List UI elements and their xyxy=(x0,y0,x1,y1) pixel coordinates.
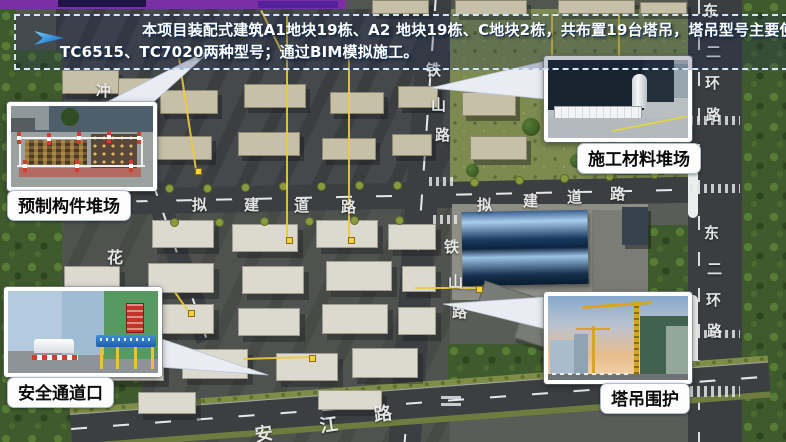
callout-label-safety: 安全通道口 xyxy=(7,377,114,408)
map-building-construction xyxy=(398,307,436,335)
silo-icon xyxy=(632,74,647,108)
crosswalk xyxy=(690,184,740,193)
callout-image-crane xyxy=(544,292,692,384)
barrier-post xyxy=(47,133,51,145)
materials-scene xyxy=(548,60,688,138)
barrier-post xyxy=(23,160,27,172)
road-label-char: 路 xyxy=(341,200,356,215)
map-building-construction xyxy=(388,224,436,250)
tree-icon xyxy=(61,108,79,126)
barrier-post xyxy=(137,132,141,144)
tree-icon xyxy=(522,118,540,136)
road-label-char: 山 xyxy=(431,98,446,113)
crane-jib-icon xyxy=(582,301,652,309)
slide-canvas: 铁山路铁山路东二环路东二环路拟建道路拟建道路花冲安江路 xyxy=(0,0,786,442)
canopy-leg xyxy=(116,347,119,369)
crane-marker xyxy=(195,168,202,175)
barrier-post xyxy=(77,132,81,144)
distant-building xyxy=(550,340,576,374)
crane-marker xyxy=(476,286,483,293)
road-label-char: 路 xyxy=(452,305,467,320)
top-bar-segment xyxy=(258,1,338,8)
map-building-construction xyxy=(326,261,392,291)
crosswalk xyxy=(441,396,461,410)
road-label-char: 路 xyxy=(706,108,721,123)
road-label-char: 二 xyxy=(707,262,722,277)
callout-label-crane: 塔吊围护 xyxy=(600,383,690,414)
road-label-char: 建 xyxy=(523,194,538,209)
precast-road xyxy=(11,118,35,132)
road-label-char: 路 xyxy=(610,187,625,202)
map-building-construction xyxy=(322,304,388,334)
bush-icon xyxy=(350,216,359,225)
road-label-char: 江 xyxy=(319,416,339,436)
map-building xyxy=(372,0,429,14)
map-building xyxy=(244,84,306,108)
crane-marker xyxy=(188,310,195,317)
road-label-char: 建 xyxy=(244,198,259,213)
banner-arrow-icon xyxy=(34,29,64,47)
bush-icon xyxy=(393,181,402,190)
road-label-char: 拟 xyxy=(192,198,207,213)
map-building xyxy=(330,92,384,114)
barrier-post xyxy=(17,132,21,144)
road-label-char: 山 xyxy=(448,275,463,290)
map-building xyxy=(455,0,527,15)
crane-marker xyxy=(348,237,355,244)
bush-icon xyxy=(241,183,250,192)
road-label-char: 路 xyxy=(435,128,450,143)
map-building-construction xyxy=(138,392,196,414)
green-glass-tower-front xyxy=(666,326,688,378)
map-building-dark xyxy=(622,207,648,245)
map-building-construction xyxy=(242,266,304,294)
bush-icon xyxy=(560,174,569,183)
crane-marker xyxy=(309,355,316,362)
map-building-construction xyxy=(316,220,378,248)
top-purple-bar xyxy=(0,0,346,9)
banner-line-1: 本项目装配式建筑A1地块19栋、A2 地块19栋、C地块2栋，共布置19台塔吊，… xyxy=(142,19,786,42)
bush-icon xyxy=(305,217,314,226)
map-building xyxy=(558,0,635,14)
callout-image-precast xyxy=(7,102,157,191)
striped-barrier xyxy=(32,355,78,360)
distant-building xyxy=(574,334,588,374)
crane-leader-line xyxy=(415,287,478,289)
map-building-construction xyxy=(352,348,418,378)
blue-hall xyxy=(461,210,588,286)
bush-icon xyxy=(203,184,212,193)
road-label-char: 铁 xyxy=(444,240,459,255)
map-building xyxy=(470,136,527,160)
map-building-construction xyxy=(182,349,248,379)
bush-icon xyxy=(470,178,479,187)
tree-icon xyxy=(466,164,479,177)
crane-mast-icon xyxy=(634,302,639,376)
safety-canopy xyxy=(96,335,156,347)
crane-mast-icon xyxy=(592,326,595,374)
canopy-leg xyxy=(151,347,154,369)
road-label-char: 花 xyxy=(107,250,123,266)
map-building xyxy=(462,92,516,116)
crosswalk xyxy=(690,386,740,397)
crane-scene xyxy=(548,296,688,380)
bush-icon xyxy=(215,218,224,227)
barrier-post xyxy=(129,160,133,172)
map-building xyxy=(640,2,687,14)
road-label-char: 路 xyxy=(707,324,722,339)
road-label-char: 路 xyxy=(373,405,393,425)
road-label-char: 环 xyxy=(705,76,720,91)
map-building xyxy=(118,78,154,100)
road-label-char: 拟 xyxy=(477,198,492,213)
canopy-leg xyxy=(134,347,137,369)
road-label-char: 东 xyxy=(704,226,719,241)
barrier-post xyxy=(107,131,111,143)
road-label-char: 冲 xyxy=(96,84,111,99)
road-label-char: 安 xyxy=(254,425,274,442)
hoist-icon xyxy=(126,303,144,333)
canopy-leg xyxy=(100,347,103,369)
tent-icon xyxy=(34,339,74,353)
road-label-char: 道 xyxy=(567,190,582,205)
crosswalk xyxy=(429,177,457,186)
bush-icon xyxy=(165,184,174,193)
map-building-construction xyxy=(152,220,214,248)
barrier-post xyxy=(75,160,79,172)
banner-line-2: TC6515、TC7020两种型号；通过BIM模拟施工。 xyxy=(60,41,786,64)
bush-icon xyxy=(355,181,364,190)
info-banner: 本项目装配式建筑A1地块19栋、A2 地块19栋、C地块2栋，共布置19台塔吊，… xyxy=(14,14,786,70)
bush-icon xyxy=(515,176,524,185)
precast-walkway xyxy=(19,168,141,177)
road-label-char: 环 xyxy=(706,293,721,308)
road-label-char: 道 xyxy=(294,199,309,214)
map-building-construction xyxy=(238,308,300,336)
bush-icon xyxy=(395,216,404,225)
fence-line xyxy=(141,137,143,167)
map-building xyxy=(238,132,300,156)
map-building xyxy=(154,136,212,160)
bush-icon xyxy=(170,218,179,227)
callout-label-materials: 施工材料堆场 xyxy=(577,143,701,174)
safety-scene xyxy=(8,291,158,373)
top-bar-segment xyxy=(58,0,146,7)
map-building xyxy=(392,134,432,156)
crane-marker xyxy=(286,237,293,244)
callout-label-precast: 预制构件堆场 xyxy=(7,190,131,221)
bush-icon xyxy=(317,182,326,191)
precast-scene xyxy=(11,106,153,187)
callout-image-safety xyxy=(4,287,162,377)
fence-line xyxy=(17,165,145,167)
map-building xyxy=(160,90,218,114)
bush-icon xyxy=(260,217,269,226)
site-fence xyxy=(552,373,632,375)
crosswalk xyxy=(433,215,461,224)
canopy-signage xyxy=(100,338,152,341)
